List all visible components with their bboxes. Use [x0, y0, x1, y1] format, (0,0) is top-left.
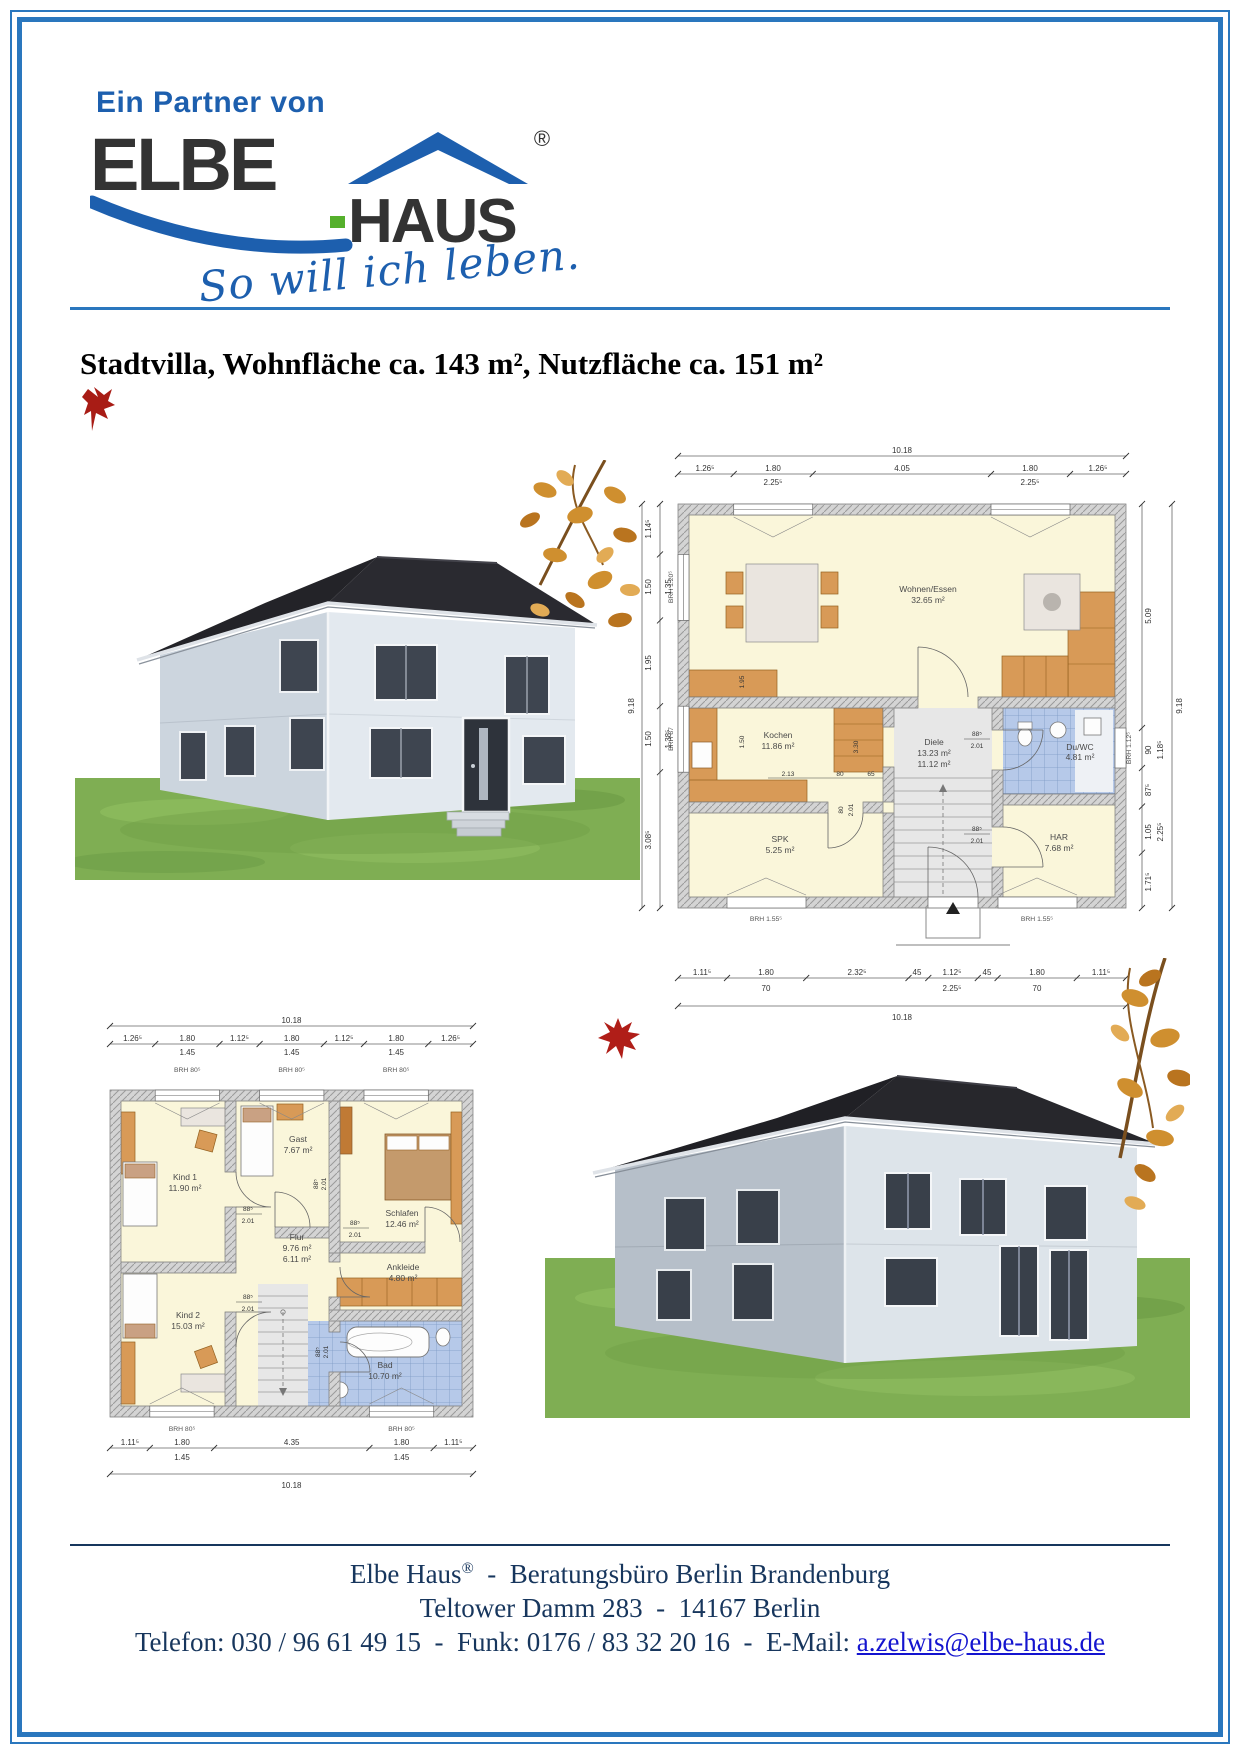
room-label: Wohnen/Essen	[899, 584, 957, 594]
svg-text:13.23 m²: 13.23 m²	[917, 748, 951, 758]
svg-text:80: 80	[838, 806, 845, 814]
svg-text:88⁵: 88⁵	[972, 731, 982, 738]
svg-text:1.80: 1.80	[1022, 464, 1038, 473]
room-label: Kind 2	[176, 1310, 200, 1320]
footer-divider	[70, 1544, 1170, 1546]
svg-text:1.50: 1.50	[644, 731, 653, 747]
red-leaf-icon	[82, 385, 116, 433]
svg-text:1.05: 1.05	[1144, 824, 1153, 840]
svg-text:5.25 m²: 5.25 m²	[766, 845, 795, 855]
svg-text:1.45: 1.45	[174, 1453, 190, 1462]
svg-text:1.80: 1.80	[394, 1438, 410, 1447]
svg-text:3.30: 3.30	[853, 740, 860, 753]
svg-text:87⁵: 87⁵	[1144, 784, 1153, 796]
svg-text:88⁵: 88⁵	[243, 1206, 253, 1213]
svg-text:1.80: 1.80	[388, 1034, 404, 1043]
svg-text:88⁵: 88⁵	[350, 1220, 360, 1227]
svg-text:4.80 m²: 4.80 m²	[389, 1273, 418, 1283]
svg-text:1.50: 1.50	[739, 735, 746, 748]
svg-text:88⁵: 88⁵	[972, 826, 982, 833]
cabinet	[277, 1104, 303, 1120]
window	[1045, 1186, 1087, 1240]
svg-text:1.80: 1.80	[180, 1034, 196, 1043]
window	[665, 1198, 705, 1250]
toilet	[1018, 728, 1032, 746]
door-step	[457, 828, 501, 836]
svg-text:11.86 m²: 11.86 m²	[762, 741, 795, 751]
stairwell-floor	[258, 1284, 308, 1406]
svg-text:BRH 1.20⁵: BRH 1.20⁵	[668, 571, 675, 603]
svg-text:80: 80	[836, 771, 844, 778]
svg-text:90: 90	[1144, 745, 1153, 754]
room-label: Flur	[290, 1232, 305, 1242]
eg-entry-porch	[896, 902, 1010, 945]
room-label: Bad	[377, 1360, 392, 1370]
svg-text:1.26⁵: 1.26⁵	[441, 1034, 460, 1043]
washer	[1084, 718, 1101, 735]
wardrobe	[451, 1112, 462, 1224]
svg-text:2.01: 2.01	[323, 1345, 330, 1358]
window	[225, 726, 255, 776]
sideboard	[689, 670, 777, 697]
registered-mark: ®	[462, 1560, 474, 1577]
svg-text:1.95: 1.95	[644, 655, 653, 671]
svg-text:BRH 1.12⁵: BRH 1.12⁵	[1126, 732, 1133, 764]
svg-text:BRH 80⁵: BRH 80⁵	[383, 1067, 410, 1074]
svg-text:BRH 80⁵: BRH 80⁵	[388, 1426, 415, 1433]
svg-text:9.18: 9.18	[1175, 698, 1184, 714]
svg-text:10.18: 10.18	[281, 1016, 302, 1025]
room-label: Kind 1	[173, 1172, 197, 1182]
svg-text:1.45: 1.45	[388, 1048, 404, 1057]
svg-text:65: 65	[867, 771, 875, 778]
svg-text:1.11⁵: 1.11⁵	[121, 1438, 139, 1447]
chair	[821, 606, 838, 628]
window	[180, 732, 206, 780]
dim: 10.18	[892, 446, 913, 455]
wardrobe	[121, 1342, 135, 1404]
sink	[1050, 722, 1066, 738]
svg-text:12.46 m²: 12.46 m²	[385, 1219, 419, 1229]
svg-text:6.11 m²: 6.11 m²	[283, 1254, 311, 1264]
svg-text:7.67 m²: 7.67 m²	[284, 1145, 313, 1155]
svg-text:1.45: 1.45	[394, 1453, 410, 1462]
svg-text:BRH 80⁵: BRH 80⁵	[169, 1426, 196, 1433]
svg-text:15.03 m²: 15.03 m²	[171, 1321, 205, 1331]
svg-text:1.80: 1.80	[284, 1034, 300, 1043]
window	[280, 640, 318, 692]
logo-roof-icon	[348, 132, 528, 184]
svg-text:11.90 m²: 11.90 m²	[169, 1183, 202, 1193]
sofa	[1002, 656, 1068, 700]
svg-text:2.01: 2.01	[242, 1306, 255, 1313]
house-render-front	[75, 460, 640, 880]
svg-text:4.05: 4.05	[894, 464, 910, 473]
svg-text:BRH 1.55⁵: BRH 1.55⁵	[1021, 916, 1053, 923]
autumn-foliage	[517, 460, 640, 629]
svg-text:2.25⁵: 2.25⁵	[764, 478, 783, 487]
svg-text:BRH 80⁵: BRH 80⁵	[278, 1067, 305, 1074]
room-label: HAR	[1050, 832, 1068, 842]
door-step	[447, 812, 509, 820]
kitchen-sink	[692, 742, 712, 768]
room-label: Gast	[289, 1134, 308, 1144]
svg-text:1.18⁵: 1.18⁵	[1156, 741, 1165, 760]
toilet	[436, 1328, 450, 1346]
flyer-page: Ein Partner von ELBE ® HAUS So will ich …	[0, 0, 1240, 1754]
svg-text:1.80: 1.80	[765, 464, 781, 473]
header-divider	[70, 307, 1170, 310]
svg-text:88⁵: 88⁵	[243, 1294, 253, 1301]
svg-text:88⁵: 88⁵	[313, 1179, 320, 1189]
svg-text:2.01: 2.01	[971, 743, 984, 750]
house-body	[160, 612, 575, 820]
room-label: Kochen	[764, 730, 793, 740]
svg-text:1.12⁵: 1.12⁵	[230, 1034, 249, 1043]
kitchen-counter	[689, 780, 807, 802]
window	[290, 718, 324, 770]
logo-swoosh	[92, 202, 346, 247]
chair	[726, 606, 743, 628]
floorplan-ground-floor: 10.18 1.26⁵ 1.80 4.05 1.80 1.26⁵ 2.25⁵ 2…	[628, 442, 1188, 1037]
logo-hyphen	[330, 216, 345, 228]
svg-text:7.68 m²: 7.68 m²	[1045, 843, 1074, 853]
room-label: Ankleide	[387, 1262, 420, 1272]
svg-text:2.25⁵: 2.25⁵	[1156, 823, 1165, 842]
svg-text:BRH 87: BRH 87	[668, 727, 675, 751]
svg-text:2.01: 2.01	[321, 1177, 328, 1190]
house-front-wall	[328, 612, 575, 820]
svg-text:88⁵: 88⁵	[315, 1347, 322, 1357]
bathtub	[347, 1327, 429, 1357]
footer: Elbe Haus® - Beratungsbüro Berlin Brande…	[70, 1552, 1170, 1659]
svg-text:1.12⁵: 1.12⁵	[335, 1034, 354, 1043]
duct	[340, 1107, 352, 1154]
svg-text:32.65 m²: 32.65 m²	[911, 595, 945, 605]
svg-text:10.18: 10.18	[281, 1481, 302, 1490]
svg-text:1.80: 1.80	[174, 1438, 190, 1447]
svg-text:10.70 m²: 10.70 m²	[368, 1371, 402, 1381]
svg-text:2.01: 2.01	[242, 1218, 255, 1225]
room-label: Diele	[924, 737, 944, 747]
logo-elbe-text: ELBE	[90, 124, 276, 206]
house-render-rear	[545, 958, 1190, 1418]
footer-company-line: Elbe Haus® - Beratungsbüro Berlin Brande…	[70, 1552, 1170, 1591]
room-label: SPK	[771, 834, 788, 844]
footer-address-line: Teltower Damm 283 - 14167 Berlin	[70, 1591, 1170, 1625]
svg-text:1.26⁵: 1.26⁵	[123, 1034, 142, 1043]
svg-text:1.71⁵: 1.71⁵	[1144, 873, 1153, 892]
floorplan-upper-floor: 10.18 1.26⁵ 1.80 1.12⁵ 1.80 1.12⁵ 1.80 1…	[85, 1012, 520, 1512]
svg-text:1.95: 1.95	[739, 675, 746, 688]
svg-text:11.12 m²: 11.12 m²	[918, 759, 951, 769]
svg-text:4.35: 4.35	[284, 1438, 300, 1447]
chair	[726, 572, 743, 594]
svg-text:9.76 m²: 9.76 m²	[283, 1243, 312, 1253]
page-title: Stadtvilla, Wohnfläche ca. 143 m², Nutzf…	[80, 346, 823, 382]
svg-text:3.08⁵: 3.08⁵	[644, 831, 653, 850]
svg-text:2.25⁵: 2.25⁵	[1021, 478, 1040, 487]
svg-text:1.45: 1.45	[284, 1048, 300, 1057]
dining-table	[746, 564, 818, 642]
chair	[821, 572, 838, 594]
window	[733, 1264, 773, 1320]
room-label: Du/WC	[1066, 742, 1093, 752]
svg-text:BRH 80⁵: BRH 80⁵	[174, 1067, 201, 1074]
svg-text:1.45: 1.45	[180, 1048, 196, 1057]
svg-text:1.50: 1.50	[644, 579, 653, 595]
svg-text:1.14⁵: 1.14⁵	[644, 520, 653, 539]
logo-registered-mark: ®	[534, 126, 550, 151]
svg-text:2.01: 2.01	[848, 803, 855, 816]
footer-contact-line: Telefon: 030 / 96 61 49 15 - Funk: 0176 …	[70, 1625, 1170, 1659]
window	[737, 1190, 779, 1244]
svg-text:1.11⁵: 1.11⁵	[444, 1438, 462, 1447]
svg-text:1.26⁵: 1.26⁵	[1089, 464, 1108, 473]
svg-text:2.01: 2.01	[971, 838, 984, 845]
svg-text:1.26⁵: 1.26⁵	[696, 464, 715, 473]
email-link[interactable]: a.zelwis@elbe-haus.de	[857, 1627, 1105, 1657]
svg-text:9.18: 9.18	[628, 698, 636, 714]
svg-text:BRH 1.55⁵: BRH 1.55⁵	[750, 916, 782, 923]
partner-tagline: Ein Partner von	[96, 86, 325, 120]
window	[523, 736, 565, 784]
svg-text:4.81 m²: 4.81 m²	[1066, 752, 1095, 762]
door-step	[452, 820, 505, 828]
svg-text:2.01: 2.01	[349, 1232, 362, 1239]
window	[657, 1270, 691, 1320]
room-label: Schlafen	[385, 1208, 418, 1218]
svg-text:5.09: 5.09	[1144, 608, 1153, 624]
svg-text:2.13: 2.13	[782, 771, 795, 778]
window	[885, 1258, 937, 1306]
